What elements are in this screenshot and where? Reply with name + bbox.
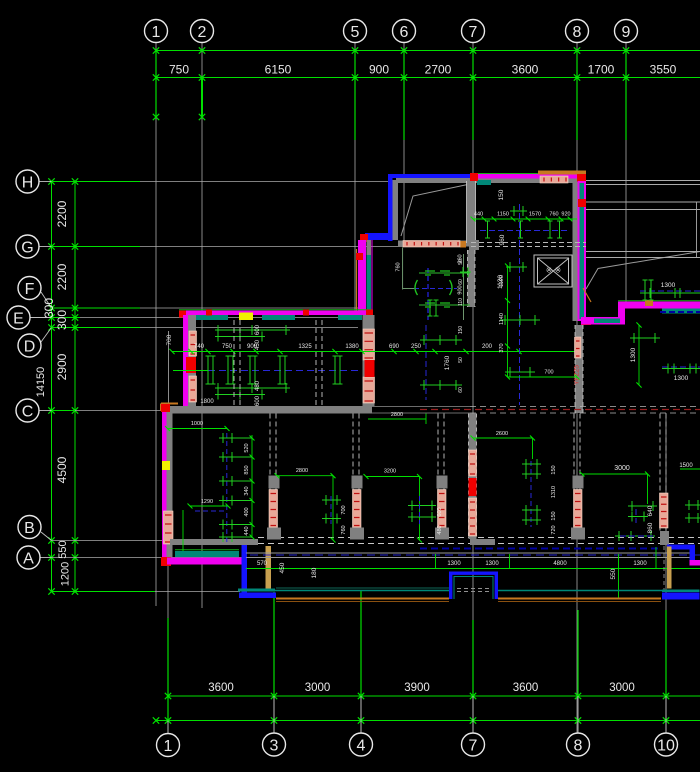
svg-text:570: 570 bbox=[257, 561, 268, 567]
svg-text:1300: 1300 bbox=[485, 561, 499, 567]
svg-text:300: 300 bbox=[42, 298, 56, 318]
svg-text:3550: 3550 bbox=[650, 63, 677, 77]
svg-text:480: 480 bbox=[255, 380, 261, 391]
svg-text:150: 150 bbox=[551, 465, 557, 474]
svg-text:6: 6 bbox=[400, 24, 409, 41]
svg-text:3000: 3000 bbox=[305, 682, 331, 694]
svg-text:B: B bbox=[24, 520, 35, 537]
svg-text:3600: 3600 bbox=[512, 63, 539, 77]
svg-text:700: 700 bbox=[166, 334, 173, 345]
svg-text:3600: 3600 bbox=[208, 682, 234, 694]
svg-text:2200: 2200 bbox=[55, 263, 69, 290]
svg-text:1310: 1310 bbox=[551, 486, 557, 498]
svg-text:6150: 6150 bbox=[265, 63, 292, 77]
svg-text:2: 2 bbox=[198, 24, 207, 41]
svg-text:10: 10 bbox=[657, 737, 675, 754]
svg-text:110: 110 bbox=[458, 298, 464, 306]
svg-text:1800: 1800 bbox=[200, 399, 214, 405]
svg-text:2800: 2800 bbox=[391, 412, 403, 418]
svg-text:750: 750 bbox=[169, 63, 189, 77]
svg-text:200: 200 bbox=[482, 344, 493, 350]
svg-text:50: 50 bbox=[458, 259, 464, 265]
svg-text:1380: 1380 bbox=[345, 344, 359, 350]
svg-text:750: 750 bbox=[222, 344, 233, 350]
svg-text:760: 760 bbox=[341, 525, 347, 534]
svg-text:700: 700 bbox=[341, 505, 347, 514]
svg-text:440: 440 bbox=[244, 526, 250, 535]
svg-text:690: 690 bbox=[389, 344, 400, 350]
svg-text:340: 340 bbox=[244, 486, 250, 495]
svg-text:960: 960 bbox=[499, 234, 506, 245]
svg-text:9: 9 bbox=[622, 24, 631, 41]
svg-text:F: F bbox=[25, 281, 35, 298]
svg-text:60: 60 bbox=[458, 387, 464, 393]
svg-text:400: 400 bbox=[244, 507, 250, 516]
svg-text:1: 1 bbox=[164, 738, 173, 755]
svg-text:3000: 3000 bbox=[614, 465, 630, 472]
svg-text:2900: 2900 bbox=[55, 353, 69, 380]
svg-text:8: 8 bbox=[574, 737, 583, 754]
svg-text:3: 3 bbox=[270, 737, 279, 754]
svg-text:8: 8 bbox=[573, 24, 582, 41]
svg-text:50: 50 bbox=[458, 357, 464, 363]
svg-text:4500: 4500 bbox=[55, 456, 69, 483]
svg-text:※: ※ bbox=[555, 266, 562, 275]
svg-text:1200: 1200 bbox=[60, 562, 72, 586]
svg-text:2600: 2600 bbox=[496, 431, 508, 437]
svg-text:4800: 4800 bbox=[553, 561, 567, 567]
svg-text:1190: 1190 bbox=[499, 275, 505, 287]
svg-text:1700: 1700 bbox=[588, 63, 615, 77]
svg-text:440: 440 bbox=[474, 212, 483, 218]
svg-text:D: D bbox=[24, 338, 36, 355]
svg-text:1: 1 bbox=[152, 24, 161, 41]
svg-text:150: 150 bbox=[551, 511, 557, 520]
svg-text:300: 300 bbox=[55, 310, 69, 330]
svg-text:600: 600 bbox=[255, 395, 261, 406]
svg-text:1500: 1500 bbox=[679, 463, 693, 469]
svg-text:520: 520 bbox=[244, 443, 250, 452]
svg-text:600: 600 bbox=[255, 324, 261, 335]
svg-text:860: 860 bbox=[647, 522, 654, 533]
svg-text:7: 7 bbox=[469, 24, 478, 41]
svg-text:1300: 1300 bbox=[630, 347, 637, 362]
svg-text:150: 150 bbox=[498, 189, 505, 200]
svg-text:3000: 3000 bbox=[609, 682, 635, 694]
svg-text:150: 150 bbox=[458, 326, 464, 335]
svg-text:60: 60 bbox=[458, 279, 464, 285]
svg-text:3900: 3900 bbox=[404, 682, 430, 694]
svg-text:7: 7 bbox=[469, 737, 478, 754]
svg-text:1300: 1300 bbox=[633, 561, 647, 567]
svg-text:1760: 1760 bbox=[444, 355, 451, 370]
svg-text:550: 550 bbox=[57, 540, 69, 558]
svg-text:2700: 2700 bbox=[425, 63, 452, 77]
svg-text:600: 600 bbox=[437, 507, 443, 516]
svg-text:1570: 1570 bbox=[529, 212, 541, 218]
svg-text:740: 740 bbox=[194, 344, 205, 350]
svg-text:180: 180 bbox=[311, 567, 318, 578]
svg-text:480: 480 bbox=[437, 525, 443, 534]
svg-text:640: 640 bbox=[647, 505, 654, 516]
svg-text:900: 900 bbox=[369, 63, 389, 77]
svg-text:760: 760 bbox=[549, 212, 558, 218]
svg-text:720: 720 bbox=[551, 525, 557, 534]
svg-text:850: 850 bbox=[244, 465, 250, 474]
svg-text:C: C bbox=[22, 403, 34, 420]
svg-text:E: E bbox=[13, 310, 24, 327]
svg-text:900: 900 bbox=[458, 285, 464, 294]
svg-text:※: ※ bbox=[546, 266, 553, 275]
svg-text:1000: 1000 bbox=[191, 421, 203, 427]
svg-text:1325: 1325 bbox=[298, 344, 312, 350]
svg-text:1140: 1140 bbox=[499, 313, 505, 325]
svg-text:450: 450 bbox=[279, 562, 286, 573]
svg-text:1300: 1300 bbox=[661, 282, 676, 289]
svg-text:760: 760 bbox=[396, 262, 402, 271]
svg-text:2800: 2800 bbox=[296, 468, 308, 474]
svg-text:1290: 1290 bbox=[201, 499, 213, 505]
svg-text:1300: 1300 bbox=[447, 561, 461, 567]
svg-text:2200: 2200 bbox=[55, 200, 69, 227]
svg-text:H: H bbox=[22, 174, 34, 191]
svg-text:370: 370 bbox=[499, 343, 505, 352]
svg-text:1300: 1300 bbox=[674, 375, 689, 382]
svg-text:5: 5 bbox=[351, 24, 360, 41]
svg-text:3200: 3200 bbox=[384, 469, 396, 475]
svg-text:A: A bbox=[23, 550, 34, 567]
svg-text:G: G bbox=[21, 239, 33, 256]
svg-text:250: 250 bbox=[411, 344, 422, 350]
svg-text:1150: 1150 bbox=[497, 212, 509, 218]
svg-text:920: 920 bbox=[561, 212, 570, 218]
svg-text:550: 550 bbox=[610, 568, 617, 579]
svg-text:450: 450 bbox=[255, 339, 261, 350]
svg-text:700: 700 bbox=[544, 370, 553, 376]
svg-text:3600: 3600 bbox=[513, 682, 539, 694]
svg-text:4: 4 bbox=[357, 737, 366, 754]
svg-text:14150: 14150 bbox=[35, 367, 47, 398]
